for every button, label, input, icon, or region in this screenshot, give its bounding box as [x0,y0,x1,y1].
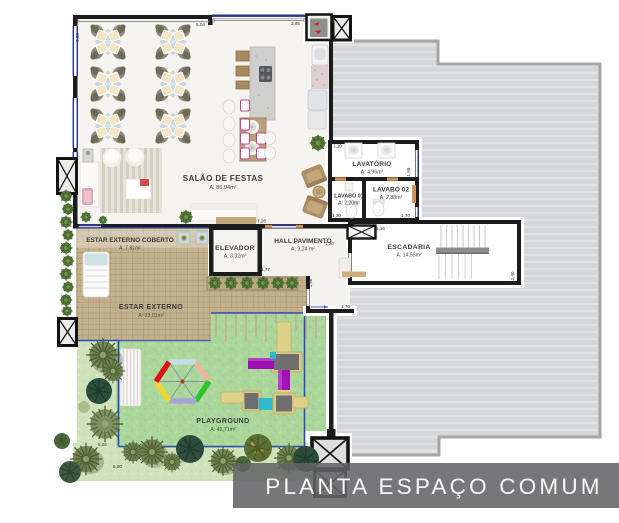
svg-text:A: 7,81m²: A: 7,81m² [119,246,141,252]
svg-text:1,30: 1,30 [332,213,341,218]
svg-text:A: 14,55m²: A: 14,55m² [396,253,422,259]
svg-text:ESTAR EXTERNO: ESTAR EXTERNO [119,304,183,311]
svg-text:A: 2,20m²: A: 2,20m² [338,201,360,207]
svg-text:1,20: 1,20 [325,241,334,246]
svg-text:1,70: 1,70 [401,213,410,218]
svg-text:3,95: 3,95 [291,21,300,26]
svg-text:5,04: 5,04 [196,22,205,27]
svg-text:LAVABO 02: LAVABO 02 [373,187,409,194]
svg-text:1,98: 1,98 [308,278,313,287]
svg-text:SALÃO DE FESTAS: SALÃO DE FESTAS [183,174,264,183]
svg-text:A: 86,94m²: A: 86,94m² [209,185,236,191]
svg-text:ESCADARIA: ESCADARIA [387,244,430,251]
svg-text:6,50: 6,50 [113,464,122,469]
svg-text:8,02: 8,02 [98,442,107,447]
svg-text:3,10: 3,10 [333,144,342,149]
svg-text:1,77: 1,77 [261,267,270,272]
svg-text:9,08: 9,08 [75,33,80,42]
svg-text:A: 23,01m²: A: 23,01m² [138,313,164,319]
svg-text:A: 4,96m²: A: 4,96m² [361,170,384,176]
svg-text:A: 3,32m²: A: 3,32m² [224,254,247,260]
svg-text:5,16: 5,16 [376,226,385,231]
svg-text:LAVATÓRIO: LAVATÓRIO [352,159,391,168]
svg-text:ESTAR EXTERNO COBERTO: ESTAR EXTERNO COBERTO [86,237,173,244]
svg-text:PLAYGROUND: PLAYGROUND [196,418,249,425]
svg-text:LAVABO 01: LAVABO 01 [334,194,363,200]
svg-text:2,40: 2,40 [510,271,515,280]
svg-text:A: 2,88m²: A: 2,88m² [380,195,403,201]
svg-text:7,28: 7,28 [257,219,266,224]
svg-text:8,63: 8,63 [328,207,333,216]
svg-text:A: 42,71m²: A: 42,71m² [210,427,236,433]
svg-text:PLANTA ESPAÇO COMUM: PLANTA ESPAÇO COMUM [265,474,603,499]
svg-text:A: 9,24 m²: A: 9,24 m² [291,247,315,253]
svg-text:1,58: 1,58 [406,167,411,176]
svg-text:1,70: 1,70 [341,304,350,309]
svg-text:HALL PAVIMENTO: HALL PAVIMENTO [274,238,331,245]
svg-text:ELEVADOR: ELEVADOR [215,245,255,252]
